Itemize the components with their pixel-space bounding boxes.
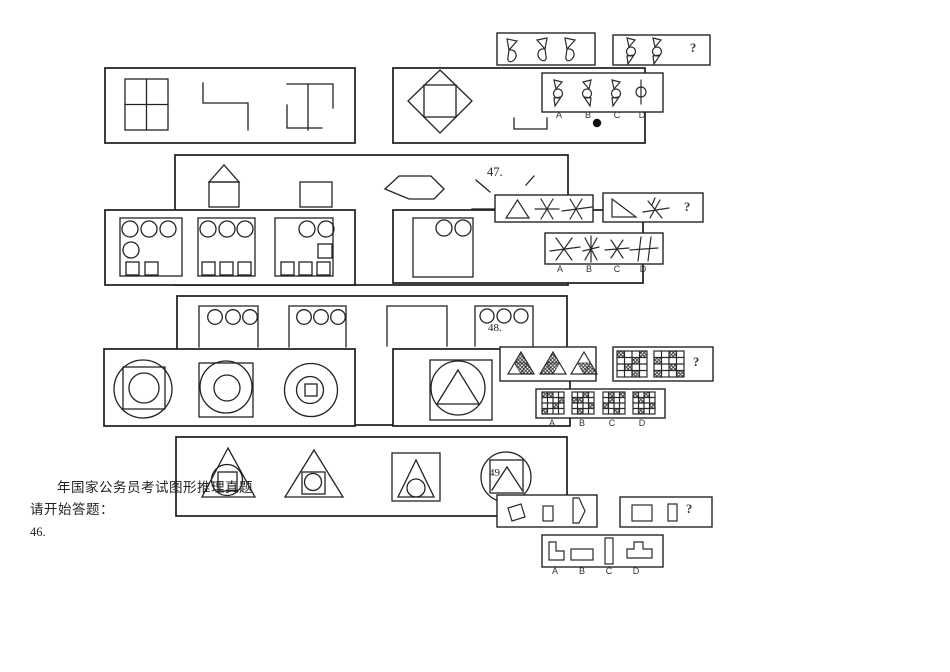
q47-answer-box xyxy=(545,233,663,264)
q49-problem-box-1 xyxy=(497,495,597,527)
q49-option-label-d: D xyxy=(630,567,642,577)
q47-option-label-c: C xyxy=(611,265,623,275)
q48-option-label-c: C xyxy=(606,419,618,429)
open-box-three-circles-2 xyxy=(289,306,346,347)
q46-question-mark: ? xyxy=(690,42,696,56)
house-figure xyxy=(209,165,239,207)
q49-option-label-c: C xyxy=(603,567,615,577)
answer-dot-mark xyxy=(593,119,601,127)
q47-option-label-a: A xyxy=(554,265,566,275)
q48-option-label-d: D xyxy=(636,419,648,429)
q48-question-mark: ? xyxy=(693,356,699,370)
rectangle-figure xyxy=(300,182,332,207)
q46-option-label-a: A xyxy=(553,111,565,121)
start-prompt: 请开始答题： xyxy=(30,503,114,518)
q48-option-label-a: A xyxy=(546,419,558,429)
q46-option-label-b: B xyxy=(582,111,594,121)
q47-number: 47. xyxy=(487,166,503,180)
open-box-three-circles-3 xyxy=(475,306,533,346)
q49-problem-box-2 xyxy=(620,497,712,527)
q49-option-label-b: B xyxy=(576,567,588,577)
page-title: 年国家公务员考试图形推理真题 xyxy=(57,481,253,496)
q46-option-label-c: C xyxy=(611,111,623,121)
q49-number: 49. xyxy=(489,467,503,479)
q49-answer-box xyxy=(542,535,663,567)
open-box-empty xyxy=(387,306,447,346)
q48-problem-box-1 xyxy=(500,347,597,381)
q46-number: 46. xyxy=(30,526,46,540)
q46-option-label-d: D xyxy=(636,111,648,121)
exam-scan-page: 年国家公务员考试图形推理真题 请开始答题： 46. 47. 48. 49. ? … xyxy=(0,0,950,672)
q47-question-mark: ? xyxy=(684,201,690,215)
q46-answer-box xyxy=(542,73,663,112)
row2-left-box xyxy=(105,210,355,285)
q48-option-label-b: B xyxy=(576,419,588,429)
q49-question-mark: ? xyxy=(686,503,692,517)
q46-problem-box-1 xyxy=(497,33,595,65)
hexagon-figure xyxy=(385,176,444,199)
open-box-three-circles-1 xyxy=(199,306,258,347)
row3-left-box xyxy=(104,349,355,426)
q48-number: 48. xyxy=(488,322,502,334)
q48-answer-box xyxy=(536,389,665,418)
q47-option-label-b: B xyxy=(583,265,595,275)
row1-left-box xyxy=(105,68,355,143)
q47-problem-box-1 xyxy=(495,195,593,222)
q49-option-label-a: A xyxy=(549,567,561,577)
q47-option-label-d: D xyxy=(637,265,649,275)
figure-reasoning-artwork xyxy=(0,0,950,672)
